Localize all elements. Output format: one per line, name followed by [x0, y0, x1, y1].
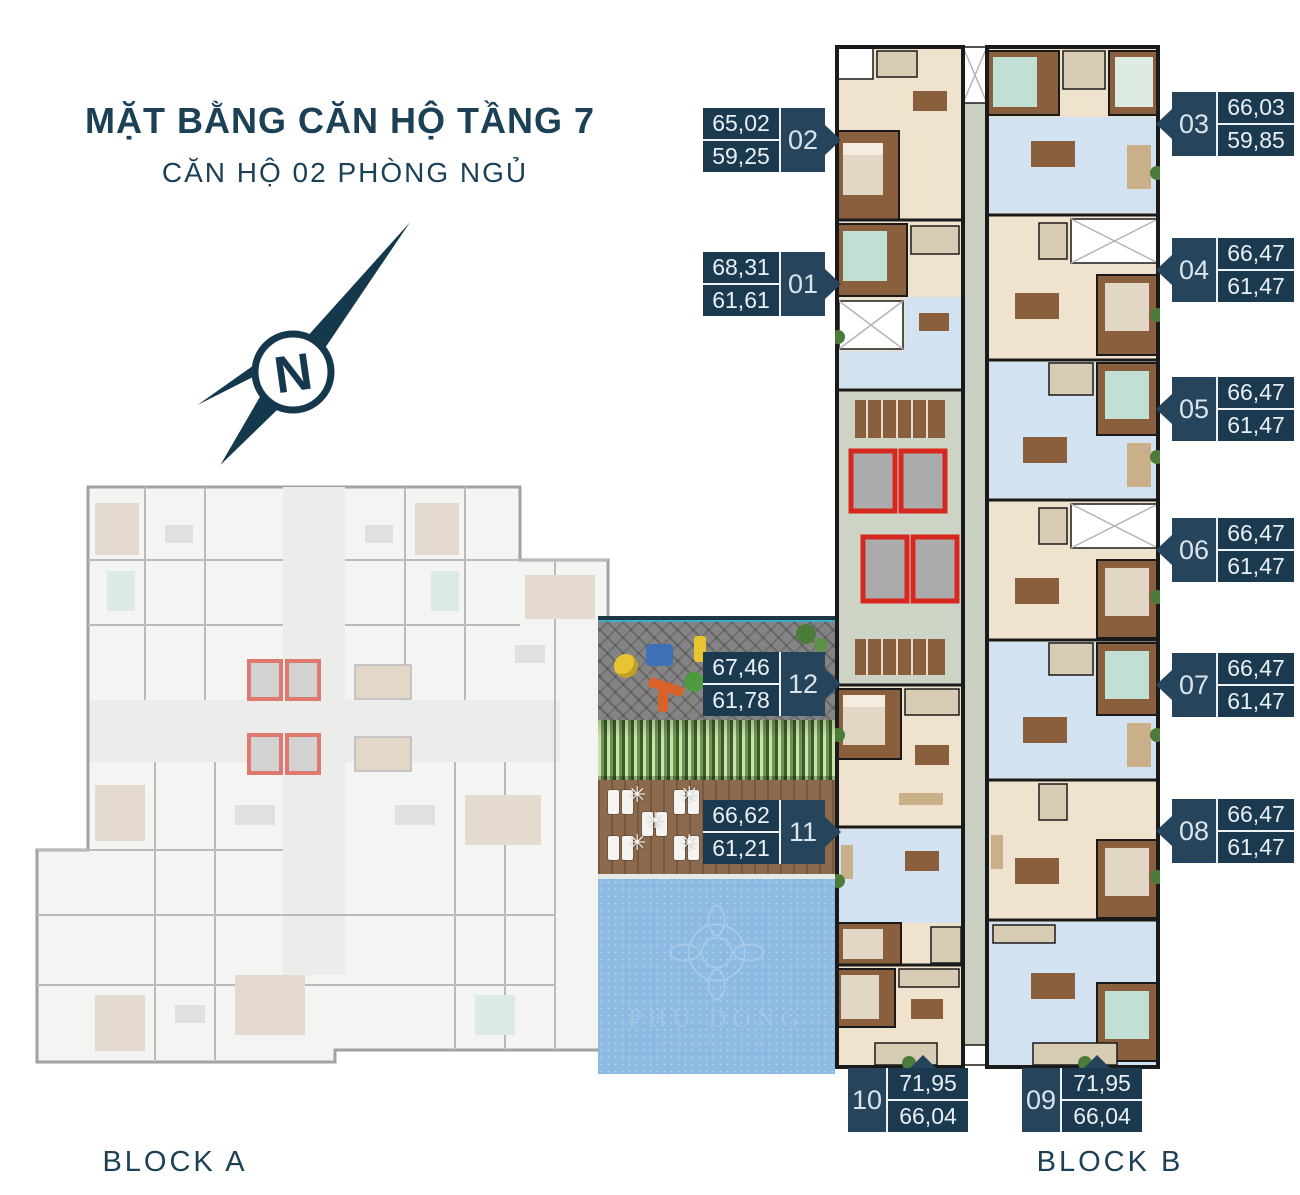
- unit-area-bottom: 61,47: [1218, 271, 1294, 302]
- unit-area-top: 66,62: [703, 800, 779, 831]
- unit-area-top: 68,31: [703, 252, 779, 283]
- unit-area-top: 71,95: [1062, 1068, 1142, 1099]
- pointer-arrow-icon: [825, 817, 841, 847]
- block-a-caption: BLOCK A: [85, 1146, 265, 1179]
- unit-number: 01: [781, 252, 825, 316]
- lounger-icon: [608, 836, 619, 860]
- swimming-pool: PHU DONG PREMIER: [598, 874, 835, 1074]
- unit-09-plan: [987, 922, 1158, 1065]
- phu-dong-watermark: PHU DONG PREMIER: [628, 904, 804, 1049]
- unit-area-top: 66,47: [1218, 238, 1294, 269]
- garden-hedge: [598, 720, 835, 780]
- unit-area-top: 71,95: [888, 1068, 968, 1099]
- unit-area-bottom: 61,21: [703, 833, 779, 864]
- unit-area-top: 66,47: [1218, 799, 1294, 830]
- merry-go-round-icon: [614, 654, 638, 678]
- unit-label-12: 67,46 61,78 12: [703, 652, 825, 716]
- pointer-arrow-icon: [1156, 670, 1172, 700]
- lounger-icon: [608, 790, 619, 814]
- page-subtitle: CĂN HỘ 02 PHÒNG NGỦ: [85, 157, 605, 189]
- block-b-floorplan: [835, 45, 1160, 1070]
- shrub-icon: [684, 672, 704, 692]
- unit-number: 11: [781, 800, 825, 864]
- umbrella-icon: ✳: [680, 832, 698, 854]
- unit-label-05: 05 66,47 61,47: [1172, 377, 1294, 441]
- unit-label-02: 65,02 59,25 02: [703, 108, 825, 172]
- unit-label-08: 08 66,47 61,47: [1172, 799, 1294, 863]
- unit-area-bottom: 61,47: [1218, 832, 1294, 863]
- compass-letter: N: [271, 343, 316, 406]
- unit-number: 07: [1172, 653, 1216, 717]
- unit-area-bottom: 61,78: [703, 685, 779, 716]
- unit-number: 06: [1172, 518, 1216, 582]
- pointer-arrow-icon: [1156, 394, 1172, 424]
- unit-area-top: 66,47: [1218, 518, 1294, 549]
- unit-area-bottom: 61,47: [1218, 410, 1294, 441]
- watermark-subtext: PREMIER: [628, 1037, 804, 1049]
- unit-area-bottom: 59,85: [1218, 125, 1294, 156]
- unit-number: 08: [1172, 799, 1216, 863]
- unit-11-plan: [837, 829, 963, 965]
- unit-number: 10: [848, 1068, 886, 1132]
- pointer-arrow-icon: [1156, 255, 1172, 285]
- unit-label-04: 04 66,47 61,47: [1172, 238, 1294, 302]
- tree-icon: [814, 638, 828, 652]
- unit-label-01: 68,31 61,61 01: [703, 252, 825, 316]
- floorplan-page: MẶT BẰNG CĂN HỘ TẦNG 7 CĂN HỘ 02 PHÒNG N…: [0, 0, 1300, 1195]
- unit-01-plan: [837, 224, 963, 388]
- stairs: [855, 639, 945, 675]
- play-structure-icon: [646, 644, 673, 666]
- unit-label-07: 07 66,47 61,47: [1172, 653, 1294, 717]
- umbrella-icon: ✳: [646, 810, 664, 832]
- unit-number: 12: [781, 652, 825, 716]
- unit-area-bottom: 66,04: [888, 1101, 968, 1132]
- unit-number: 09: [1022, 1068, 1060, 1132]
- unit-number: 05: [1172, 377, 1216, 441]
- page-title: MẶT BẰNG CĂN HỘ TẦNG 7: [85, 100, 625, 142]
- compass-north-icon: N: [178, 222, 433, 467]
- pointer-arrow-icon: [825, 269, 841, 299]
- unit-area-top: 65,02: [703, 108, 779, 139]
- block-b-caption: BLOCK B: [1020, 1146, 1200, 1179]
- unit-area-bottom: 66,04: [1062, 1101, 1142, 1132]
- pointer-arrow-icon: [1156, 109, 1172, 139]
- watermark-name: PHU DONG: [628, 1005, 804, 1033]
- unit-area-top: 66,47: [1218, 653, 1294, 684]
- unit-number: 03: [1172, 92, 1216, 156]
- umbrella-icon: ✳: [628, 832, 646, 854]
- tree-icon: [796, 624, 816, 644]
- stairs: [855, 400, 945, 438]
- block-a-floorplan: [35, 485, 610, 1065]
- unit-area-top: 66,03: [1218, 92, 1294, 123]
- unit-label-06: 06 66,47 61,47: [1172, 518, 1294, 582]
- seesaw-icon: [658, 690, 668, 712]
- unit-label-09: 09 71,95 66,04: [1022, 1068, 1142, 1132]
- unit-area-bottom: 61,47: [1218, 551, 1294, 582]
- unit-number: 02: [781, 108, 825, 172]
- pointer-arrow-icon: [825, 669, 841, 699]
- unit-05-plan: [987, 362, 1158, 498]
- unit-area-bottom: 61,61: [703, 285, 779, 316]
- pointer-arrow-icon: [1156, 535, 1172, 565]
- pointer-arrow-icon: [825, 125, 841, 155]
- unit-area-top: 67,46: [703, 652, 779, 683]
- unit-label-10: 10 71,95 66,04: [848, 1068, 968, 1132]
- umbrella-icon: ✳: [680, 784, 698, 806]
- unit-07-plan: [987, 642, 1158, 778]
- unit-03-plan: [987, 51, 1158, 213]
- unit-area-top: 66,47: [1218, 377, 1294, 408]
- pointer-arrow-icon: [910, 1055, 936, 1068]
- umbrella-icon: ✳: [628, 784, 646, 806]
- pointer-arrow-icon: [1084, 1055, 1110, 1068]
- unit-number: 04: [1172, 238, 1216, 302]
- unit-label-11: 66,62 61,21 11: [703, 800, 825, 864]
- unit-area-bottom: 61,47: [1218, 686, 1294, 717]
- unit-area-bottom: 59,25: [703, 141, 779, 172]
- pointer-arrow-icon: [1156, 816, 1172, 846]
- block-b-core: [837, 390, 963, 685]
- unit-label-03: 03 66,03 59,85: [1172, 92, 1294, 156]
- watermark-ornament-icon: [661, 904, 771, 1000]
